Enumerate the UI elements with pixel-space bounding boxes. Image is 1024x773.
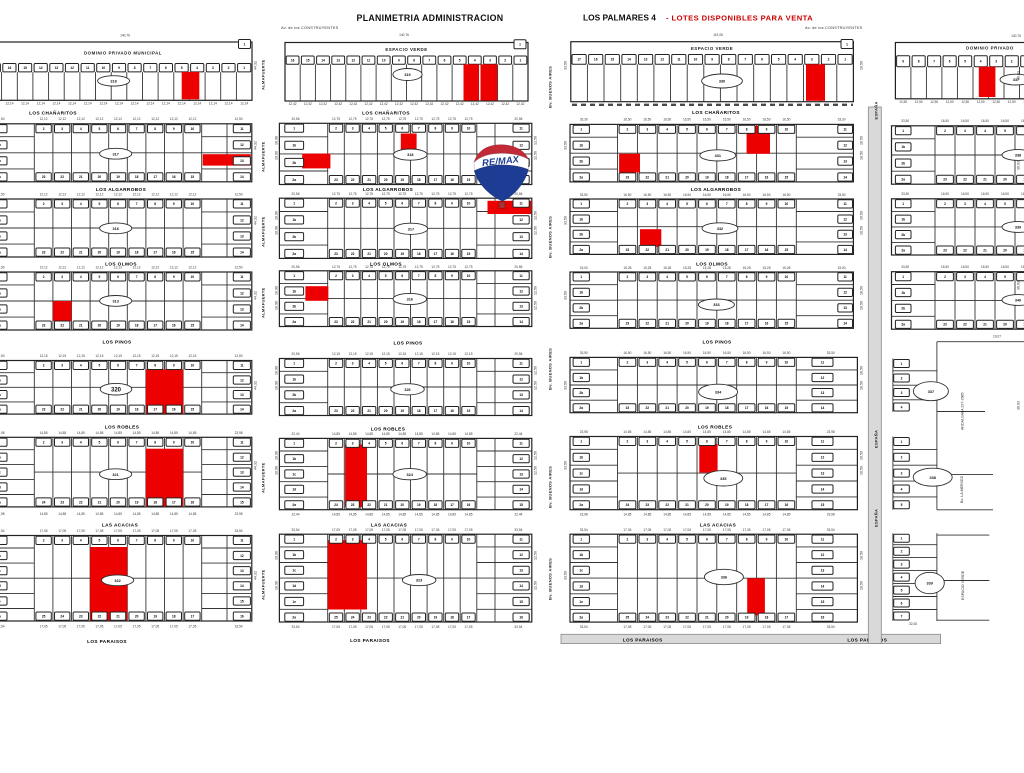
svg-text:18: 18	[153, 500, 157, 504]
svg-text:12,75: 12,75	[398, 192, 406, 196]
svg-text:12,12: 12,12	[133, 193, 141, 197]
svg-text:4: 4	[196, 66, 198, 70]
svg-text:11: 11	[240, 275, 244, 279]
svg-text:12,14: 12,14	[99, 101, 107, 105]
svg-text:16,50: 16,50	[860, 226, 864, 235]
svg-text:15: 15	[240, 500, 244, 504]
svg-text:12: 12	[240, 143, 244, 147]
svg-text:12: 12	[519, 553, 523, 557]
svg-text:20: 20	[685, 248, 689, 252]
svg-text:15: 15	[240, 599, 244, 603]
svg-text:14,85: 14,85	[58, 512, 66, 516]
svg-text:4: 4	[474, 58, 476, 62]
svg-text:19: 19	[705, 406, 709, 410]
svg-text:17,05: 17,05	[643, 528, 651, 532]
svg-text:7: 7	[136, 364, 138, 368]
svg-text:5: 5	[686, 361, 688, 365]
svg-text:9: 9	[173, 275, 175, 279]
svg-text:17,05: 17,05	[77, 625, 85, 629]
svg-text:23,98: 23,98	[580, 430, 588, 434]
svg-text:1b: 1b	[0, 378, 1, 382]
svg-text:2: 2	[335, 442, 337, 446]
svg-text:17,05: 17,05	[382, 625, 390, 629]
svg-text:12,14: 12,14	[131, 101, 139, 105]
svg-text:12,75: 12,75	[332, 192, 340, 196]
svg-text:Bv. BUENOS AIRES: Bv. BUENOS AIRES	[548, 216, 553, 258]
svg-text:1b: 1b	[292, 553, 296, 557]
svg-text:16,50: 16,50	[941, 119, 949, 123]
svg-text:16,50: 16,50	[860, 381, 864, 390]
svg-text:33,50: 33,50	[564, 141, 568, 150]
svg-text:12,75: 12,75	[382, 265, 390, 269]
svg-text:1: 1	[580, 128, 582, 132]
svg-text:17,05: 17,05	[703, 625, 711, 629]
svg-text:9: 9	[451, 537, 453, 541]
svg-text:LOS ALGARROBOS: LOS ALGARROBOS	[96, 187, 146, 192]
svg-text:22: 22	[384, 615, 388, 619]
svg-text:12: 12	[240, 554, 244, 558]
svg-text:12,15: 12,15	[188, 354, 196, 358]
svg-text:17,05: 17,05	[95, 529, 103, 533]
svg-text:17: 17	[745, 322, 749, 326]
svg-text:12,12: 12,12	[133, 117, 141, 121]
svg-text:21: 21	[665, 248, 669, 252]
svg-text:1: 1	[580, 275, 582, 279]
svg-text:1: 1	[902, 275, 904, 279]
svg-text:10,96: 10,96	[275, 381, 279, 390]
svg-text:21: 21	[401, 615, 405, 619]
svg-text:12,75: 12,75	[349, 265, 357, 269]
svg-text:12,75: 12,75	[382, 117, 390, 121]
svg-text:12,50: 12,50	[534, 151, 538, 160]
svg-text:6: 6	[706, 440, 708, 444]
svg-text:1d: 1d	[292, 584, 296, 588]
svg-text:12,14: 12,14	[178, 101, 186, 105]
svg-text:12,42: 12,42	[395, 102, 403, 106]
svg-text:21: 21	[685, 503, 689, 507]
svg-text:21: 21	[98, 500, 102, 504]
svg-text:7: 7	[428, 58, 430, 62]
svg-text:12,42: 12,42	[456, 102, 464, 106]
svg-text:14,85: 14,85	[623, 430, 631, 434]
svg-text:12,50: 12,50	[534, 381, 538, 390]
svg-text:10: 10	[191, 275, 195, 279]
svg-text:17,05: 17,05	[95, 625, 103, 629]
svg-text:14,85: 14,85	[763, 513, 771, 517]
svg-text:14,85: 14,85	[465, 432, 473, 436]
svg-text:11: 11	[240, 127, 244, 131]
svg-text:1: 1	[901, 440, 903, 444]
svg-text:14,85: 14,85	[743, 430, 751, 434]
svg-text:14: 14	[821, 487, 825, 491]
svg-text:20: 20	[1003, 248, 1007, 252]
svg-text:2a: 2a	[901, 178, 905, 182]
svg-text:16,50: 16,50	[860, 136, 864, 145]
svg-text:19: 19	[401, 252, 405, 256]
svg-text:16,50: 16,50	[703, 118, 711, 122]
svg-text:16: 16	[291, 58, 295, 62]
svg-text:339: 339	[927, 582, 933, 586]
svg-text:22: 22	[963, 178, 967, 182]
svg-text:16: 16	[172, 175, 176, 179]
svg-text:16: 16	[765, 322, 769, 326]
svg-text:23: 23	[943, 323, 947, 327]
svg-text:1b: 1b	[0, 143, 1, 147]
svg-text:2b: 2b	[901, 233, 905, 237]
svg-text:17,05: 17,05	[170, 529, 178, 533]
svg-text:12,14: 12,14	[162, 101, 170, 105]
svg-text:33,50: 33,50	[580, 193, 588, 197]
svg-text:13: 13	[843, 159, 847, 163]
svg-text:20,56: 20,56	[514, 265, 522, 269]
svg-text:7: 7	[418, 442, 420, 446]
svg-text:14,85: 14,85	[114, 512, 122, 516]
svg-text:3: 3	[61, 275, 63, 279]
svg-text:12: 12	[821, 553, 825, 557]
svg-text:4: 4	[80, 127, 82, 131]
svg-text:2a: 2a	[579, 322, 583, 326]
svg-text:2: 2	[944, 129, 946, 133]
svg-text:3: 3	[646, 537, 648, 541]
svg-text:13: 13	[55, 66, 59, 70]
svg-text:ANDALGALA 237-2985: ANDALGALA 237-2985	[961, 392, 965, 430]
svg-text:16,50: 16,50	[663, 193, 671, 197]
svg-text:21: 21	[116, 614, 120, 618]
svg-text:10,96: 10,96	[275, 151, 279, 160]
svg-text:12,50: 12,50	[0, 117, 5, 121]
svg-text:12,14: 12,14	[68, 101, 76, 105]
svg-text:5: 5	[385, 201, 387, 205]
svg-text:8: 8	[746, 128, 748, 132]
svg-text:17,05: 17,05	[683, 528, 691, 532]
svg-text:5: 5	[901, 503, 903, 507]
svg-text:17: 17	[153, 323, 157, 327]
svg-text:16: 16	[765, 406, 769, 410]
svg-text:22: 22	[963, 323, 967, 327]
svg-text:14,85: 14,85	[663, 430, 671, 434]
svg-text:7: 7	[726, 128, 728, 132]
svg-text:8: 8	[134, 66, 136, 70]
svg-text:20: 20	[135, 614, 139, 618]
svg-text:6: 6	[401, 127, 403, 131]
svg-text:9: 9	[118, 66, 120, 70]
svg-text:14: 14	[519, 320, 523, 324]
svg-text:13: 13	[240, 470, 244, 474]
svg-text:ESPACIO VERDE: ESPACIO VERDE	[691, 46, 733, 51]
svg-text:4: 4	[666, 537, 668, 541]
svg-text:14,85: 14,85	[332, 513, 340, 517]
svg-text:22: 22	[98, 614, 102, 618]
svg-text:3: 3	[811, 58, 813, 62]
svg-text:17,05: 17,05	[448, 625, 456, 629]
svg-text:16: 16	[172, 250, 176, 254]
svg-text:18: 18	[135, 408, 139, 412]
svg-text:17,05: 17,05	[365, 625, 373, 629]
svg-text:4: 4	[368, 362, 370, 366]
svg-text:14,85: 14,85	[170, 512, 178, 516]
svg-text:12,75: 12,75	[365, 192, 373, 196]
svg-text:23: 23	[351, 503, 355, 507]
svg-text:1: 1	[902, 202, 904, 206]
svg-text:2: 2	[627, 537, 629, 541]
svg-text:22: 22	[351, 320, 355, 324]
svg-text:36,63: 36,63	[1017, 401, 1021, 410]
svg-text:9: 9	[711, 58, 713, 62]
svg-text:20: 20	[384, 320, 388, 324]
svg-text:16,50: 16,50	[623, 193, 631, 197]
svg-text:18: 18	[417, 178, 421, 182]
svg-text:7: 7	[726, 440, 728, 444]
svg-text:11: 11	[240, 539, 244, 543]
svg-text:16,50: 16,50	[763, 193, 771, 197]
svg-text:21: 21	[367, 320, 371, 324]
svg-text:335: 335	[720, 477, 726, 481]
svg-text:12,12: 12,12	[77, 193, 85, 197]
svg-text:20: 20	[98, 408, 102, 412]
svg-text:4: 4	[984, 275, 986, 279]
svg-text:6: 6	[949, 60, 951, 64]
svg-text:33,50: 33,50	[580, 351, 588, 355]
svg-text:1e: 1e	[579, 600, 583, 604]
svg-text:15,28: 15,28	[703, 266, 711, 270]
svg-text:332: 332	[717, 227, 723, 231]
svg-text:323: 323	[416, 579, 422, 583]
svg-text:14: 14	[627, 58, 631, 62]
svg-text:23: 23	[334, 409, 338, 413]
svg-text:12: 12	[240, 291, 244, 295]
svg-text:3: 3	[61, 364, 63, 368]
svg-text:16: 16	[450, 409, 454, 413]
svg-text:LOS PARAISOS: LOS PARAISOS	[87, 639, 127, 644]
svg-text:12,50: 12,50	[534, 581, 538, 590]
svg-text:22: 22	[351, 178, 355, 182]
svg-text:6: 6	[901, 601, 903, 605]
svg-text:12,75: 12,75	[365, 117, 373, 121]
svg-text:2: 2	[335, 362, 337, 366]
svg-text:20,56: 20,56	[292, 265, 300, 269]
svg-text:15: 15	[191, 323, 195, 327]
svg-text:5: 5	[99, 202, 101, 206]
svg-text:21: 21	[665, 406, 669, 410]
svg-text:33,54: 33,54	[0, 625, 5, 629]
svg-text:12: 12	[843, 291, 847, 295]
svg-text:12,50: 12,50	[235, 193, 243, 197]
svg-text:24: 24	[42, 500, 46, 504]
svg-text:16: 16	[785, 503, 789, 507]
svg-text:16: 16	[8, 66, 12, 70]
svg-text:13: 13	[240, 307, 244, 311]
svg-text:11: 11	[86, 66, 90, 70]
svg-text:317: 317	[113, 152, 119, 156]
svg-text:12,12: 12,12	[40, 266, 48, 270]
svg-text:17,05: 17,05	[465, 528, 473, 532]
svg-text:316: 316	[407, 298, 413, 302]
svg-text:12,15: 12,15	[40, 354, 48, 358]
svg-text:12,12: 12,12	[170, 117, 178, 121]
svg-text:17,05: 17,05	[188, 625, 196, 629]
svg-text:14,85: 14,85	[188, 431, 196, 435]
svg-text:12,75: 12,75	[398, 265, 406, 269]
svg-text:12,75: 12,75	[431, 265, 439, 269]
svg-text:14,85: 14,85	[382, 513, 390, 517]
svg-text:6: 6	[117, 202, 119, 206]
svg-text:16,50: 16,50	[981, 265, 989, 269]
svg-text:6: 6	[117, 441, 119, 445]
svg-text:2a: 2a	[579, 616, 583, 620]
svg-text:14,85: 14,85	[332, 432, 340, 436]
svg-text:2b: 2b	[292, 305, 296, 309]
svg-text:23: 23	[626, 406, 630, 410]
svg-text:8: 8	[435, 442, 437, 446]
svg-text:20,56: 20,56	[514, 352, 522, 356]
svg-text:11: 11	[677, 58, 681, 62]
svg-text:16,50: 16,50	[941, 265, 949, 269]
svg-text:6: 6	[444, 58, 446, 62]
svg-text:6: 6	[706, 361, 708, 365]
svg-text:Bv. BUENOS AIRES: Bv. BUENOS AIRES	[548, 558, 553, 600]
svg-text:33,50: 33,50	[564, 216, 568, 225]
svg-text:12,15: 12,15	[465, 352, 473, 356]
svg-text:13: 13	[843, 233, 847, 237]
svg-text:5: 5	[1004, 202, 1006, 206]
svg-text:15: 15	[23, 66, 27, 70]
svg-text:338: 338	[1015, 154, 1021, 158]
svg-text:10: 10	[467, 201, 471, 205]
svg-text:15,28: 15,28	[763, 266, 771, 270]
svg-text:2: 2	[627, 202, 629, 206]
svg-text:20,56: 20,56	[292, 352, 300, 356]
svg-text:2: 2	[828, 58, 830, 62]
svg-text:12,42: 12,42	[471, 102, 479, 106]
svg-text:19: 19	[725, 503, 729, 507]
svg-text:1: 1	[580, 361, 582, 365]
svg-text:ESPACIO VERDE: ESPACIO VERDE	[385, 47, 427, 52]
svg-text:12,75: 12,75	[398, 117, 406, 121]
svg-text:1b: 1b	[901, 218, 905, 222]
svg-text:7: 7	[726, 361, 728, 365]
svg-text:23: 23	[42, 175, 46, 179]
svg-text:9: 9	[766, 275, 768, 279]
svg-text:16,50: 16,50	[961, 265, 969, 269]
svg-text:LOS PALMARES 4: LOS PALMARES 4	[583, 13, 656, 23]
svg-text:17,05: 17,05	[133, 529, 141, 533]
svg-text:1d: 1d	[579, 584, 583, 588]
svg-text:ESPAÑA: ESPAÑA	[874, 101, 879, 119]
svg-text:9: 9	[902, 60, 904, 64]
svg-text:12,15: 12,15	[365, 352, 373, 356]
svg-text:322: 322	[114, 579, 120, 583]
svg-text:7: 7	[418, 127, 420, 131]
svg-text:32,08: 32,08	[909, 622, 917, 626]
svg-text:15: 15	[467, 178, 471, 182]
svg-text:14: 14	[519, 488, 523, 492]
svg-text:15,28: 15,28	[723, 266, 731, 270]
svg-text:12: 12	[70, 66, 74, 70]
svg-text:6: 6	[117, 364, 119, 368]
svg-text:8: 8	[154, 275, 156, 279]
svg-text:15: 15	[467, 320, 471, 324]
svg-text:17: 17	[745, 175, 749, 179]
svg-text:12,12: 12,12	[188, 117, 196, 121]
svg-text:33,54: 33,54	[514, 625, 522, 629]
svg-text:17,05: 17,05	[743, 528, 751, 532]
svg-text:12,42: 12,42	[319, 102, 327, 106]
svg-text:10,96: 10,96	[275, 211, 279, 220]
svg-text:15: 15	[467, 252, 471, 256]
svg-text:16,50: 16,50	[763, 118, 771, 122]
svg-text:17,05: 17,05	[170, 625, 178, 629]
svg-text:PLANIMETRIA ADMINISTRACION: PLANIMETRIA ADMINISTRACION	[357, 13, 504, 23]
svg-text:17: 17	[172, 500, 176, 504]
svg-text:14,85: 14,85	[151, 431, 159, 435]
svg-text:10,96: 10,96	[275, 226, 279, 235]
svg-text:12,75: 12,75	[448, 192, 456, 196]
svg-text:21: 21	[367, 409, 371, 413]
svg-text:20,56: 20,56	[292, 117, 300, 121]
svg-text:9: 9	[173, 539, 175, 543]
svg-text:14,85: 14,85	[723, 513, 731, 517]
svg-text:12,15: 12,15	[398, 352, 406, 356]
svg-text:17: 17	[577, 58, 581, 62]
svg-text:7: 7	[744, 58, 746, 62]
svg-text:22,44: 22,44	[514, 513, 522, 517]
svg-text:13: 13	[240, 234, 244, 238]
svg-text:12,15: 12,15	[448, 352, 456, 356]
svg-text:33,54: 33,54	[827, 625, 835, 629]
svg-text:17: 17	[467, 615, 471, 619]
svg-text:10,96: 10,96	[275, 286, 279, 295]
svg-text:33,50: 33,50	[564, 381, 568, 390]
svg-text:14,85: 14,85	[382, 432, 390, 436]
svg-text:7: 7	[136, 441, 138, 445]
svg-text:1: 1	[293, 201, 295, 205]
svg-text:12,42: 12,42	[334, 102, 342, 106]
svg-text:8: 8	[154, 127, 156, 131]
svg-text:16: 16	[450, 320, 454, 324]
svg-text:6: 6	[401, 442, 403, 446]
svg-text:10: 10	[191, 127, 195, 131]
svg-text:8: 8	[435, 201, 437, 205]
svg-text:21: 21	[79, 408, 83, 412]
svg-text:14,85: 14,85	[431, 513, 439, 517]
svg-text:16,50: 16,50	[703, 193, 711, 197]
svg-text:2: 2	[43, 539, 45, 543]
svg-text:- LOTES DISPONIBLES PARA VENTA: - LOTES DISPONIBLES PARA VENTA	[666, 14, 813, 23]
svg-text:12,15: 12,15	[133, 354, 141, 358]
svg-text:2: 2	[43, 202, 45, 206]
svg-text:17,05: 17,05	[365, 528, 373, 532]
svg-text:2: 2	[335, 127, 337, 131]
svg-text:10,96: 10,96	[275, 581, 279, 590]
svg-text:LOS CHAÑARITOS: LOS CHAÑARITOS	[29, 110, 77, 116]
svg-text:11: 11	[519, 274, 523, 278]
svg-text:3: 3	[352, 362, 354, 366]
svg-text:14: 14	[240, 408, 244, 412]
svg-text:23: 23	[334, 320, 338, 324]
svg-text:1b: 1b	[579, 376, 583, 380]
svg-text:36,63: 36,63	[1017, 71, 1021, 80]
svg-text:12,50: 12,50	[534, 286, 538, 295]
svg-text:17,05: 17,05	[683, 625, 691, 629]
svg-text:Av. de los CONSTRUYENTES: Av. de los CONSTRUYENTES	[281, 25, 339, 30]
svg-text:16,50: 16,50	[663, 118, 671, 122]
svg-text:12,15: 12,15	[382, 352, 390, 356]
svg-text:7: 7	[136, 127, 138, 131]
svg-text:21: 21	[983, 178, 987, 182]
svg-text:10: 10	[467, 537, 471, 541]
svg-text:14: 14	[240, 323, 244, 327]
svg-text:12,50: 12,50	[992, 100, 1000, 104]
